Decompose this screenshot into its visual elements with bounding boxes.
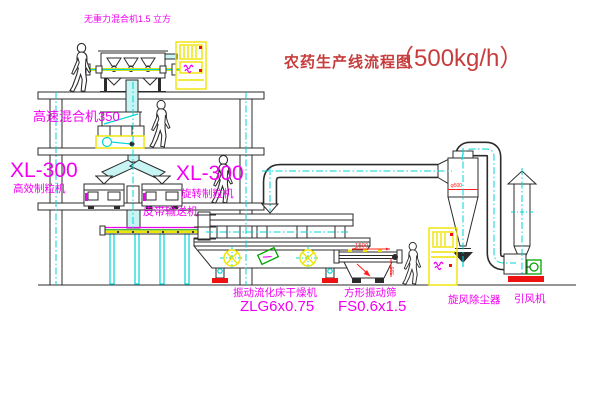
- sieve-height-dimension: 595: [390, 266, 396, 275]
- label-high-speed-mixer: 高速混合机350: [33, 110, 120, 123]
- label-granulator-mid-name: 旋转制粒机: [181, 189, 234, 200]
- granulator-left-machine: [84, 176, 124, 209]
- belt-conveyor-machine: [100, 226, 207, 284]
- cabinet-marking: [434, 262, 443, 269]
- label-sieve-name: 方形振动筛: [344, 288, 397, 299]
- label-dryer-model: ZLG6x0.75: [240, 299, 314, 314]
- label-granulator-left-model: XL-300: [10, 160, 78, 181]
- label-granulator-left-name: 高效制粒机: [13, 184, 66, 195]
- fluid-bed-dryer-machine: [194, 212, 370, 283]
- label-cyclone: 旋风除尘器: [448, 295, 501, 306]
- worker-figure: [403, 242, 421, 284]
- dryer-foot-pad: [322, 278, 338, 283]
- worker-figure: [150, 100, 170, 147]
- control-cabinet-top: [176, 42, 206, 89]
- indicator-light: [199, 69, 202, 72]
- label-dryer-name: 振动流化床干燥机: [233, 288, 317, 299]
- page-title-capacity: （500kg/h）: [390, 47, 523, 71]
- dryer-foot-pad: [212, 278, 228, 283]
- exhaust-duct: [262, 159, 449, 213]
- cabinet-marking: [184, 65, 193, 72]
- indicator-light: [199, 46, 202, 49]
- dryer-feed-duct: [198, 212, 210, 240]
- cad-canvas: φ500: [0, 0, 600, 403]
- control-cabinet-cyclone: [429, 228, 457, 285]
- granulator-marking: [143, 193, 146, 201]
- indicator-light: [449, 264, 452, 267]
- induced-draft-fan-machine: [504, 254, 544, 282]
- indicator-light: [450, 233, 453, 236]
- cyclone-dimension: φ500: [451, 183, 463, 189]
- sieve-length-dimension: 1500: [355, 244, 369, 250]
- label-fan: 引风机: [514, 294, 546, 305]
- label-belt-conveyor: 皮带输送机: [143, 207, 198, 218]
- fan-base: [508, 276, 544, 282]
- gravity-free-mixer-machine: [86, 51, 180, 112]
- worker-figure: [70, 43, 91, 91]
- granulator-marking: [85, 193, 88, 201]
- label-granulator-mid-model: XL-300: [176, 163, 244, 184]
- label-sieve-model: FS0.6x1.5: [338, 299, 406, 314]
- label-top-mixer: 无重力混合机1.5 立方: [84, 15, 171, 24]
